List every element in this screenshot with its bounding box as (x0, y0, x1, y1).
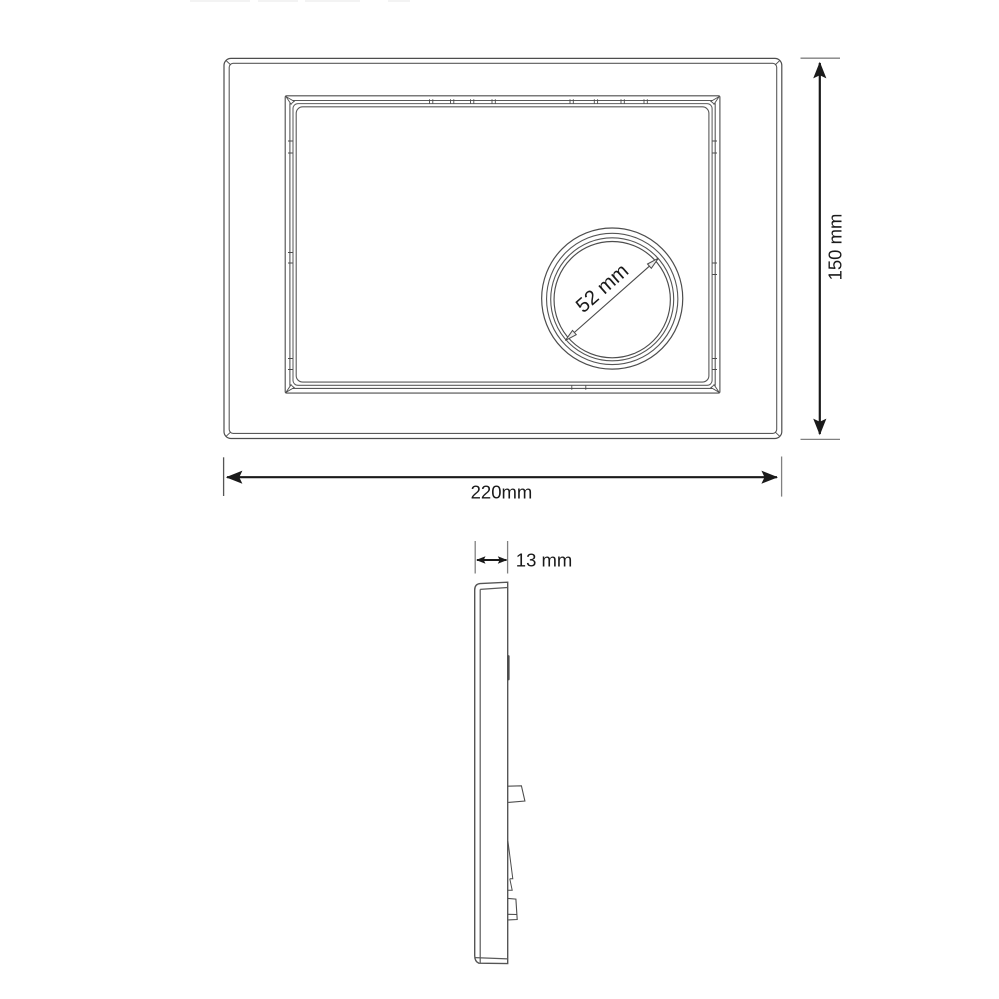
svg-text:13 mm: 13 mm (516, 550, 573, 571)
svg-text:150 mm: 150 mm (824, 214, 845, 281)
svg-text:220mm: 220mm (471, 482, 533, 503)
